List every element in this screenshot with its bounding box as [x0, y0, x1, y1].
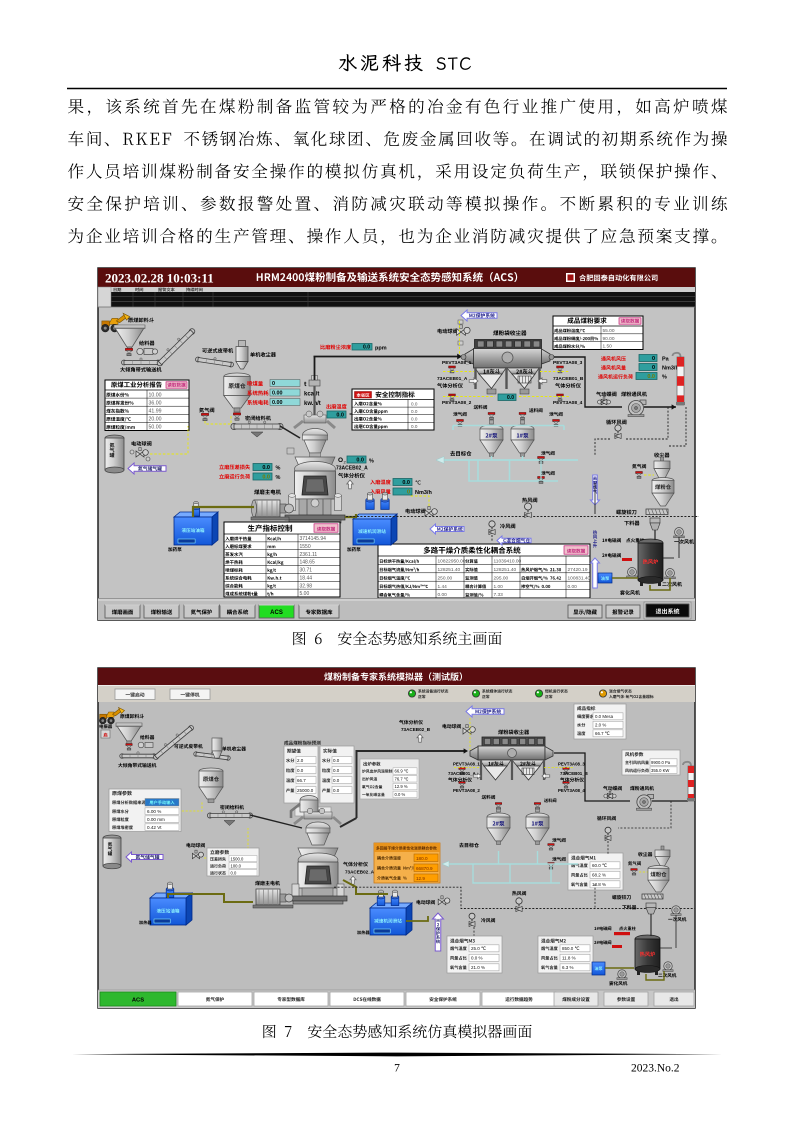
svg-text:PEVT3A08_1: PEVT3A08_1 — [442, 360, 472, 366]
svg-text:0.0: 0.0 — [411, 409, 418, 414]
svg-text:25.0 ℃: 25.0 ℃ — [471, 946, 487, 951]
svg-text:10.00: 10.00 — [149, 392, 162, 398]
svg-text:12.9 %: 12.9 % — [395, 784, 408, 789]
svg-text:9900.0 Pa: 9900.0 Pa — [651, 760, 671, 765]
svg-text:66.7: 66.7 — [297, 778, 306, 783]
svg-text:%: % — [369, 459, 374, 465]
svg-text:295.00: 295.00 — [494, 575, 509, 581]
svg-text:1.00: 1.00 — [494, 584, 504, 590]
svg-text:0.00: 0.00 — [272, 400, 283, 406]
svg-text:90.00: 90.00 — [603, 336, 615, 342]
svg-text:PEVT3A08_2: PEVT3A08_2 — [453, 788, 480, 793]
svg-text:kw.h/t: kw.h/t — [304, 401, 321, 407]
svg-text:55.00: 55.00 — [603, 328, 615, 334]
svg-text:PEVT3A08_4: PEVT3A08_4 — [553, 400, 583, 406]
svg-text:0: 0 — [652, 365, 655, 371]
svg-text:0.0: 0.0 — [297, 768, 304, 773]
svg-text:180.0: 180.0 — [416, 856, 428, 861]
svg-text:20.00: 20.00 — [149, 417, 162, 423]
svg-text:kcal/t: kcal/t — [304, 392, 319, 398]
svg-text:ACS: ACS — [270, 610, 283, 616]
svg-text:2023.No.2: 2023.No.2 — [631, 1063, 680, 1075]
svg-text:1.44: 1.44 — [438, 584, 448, 590]
svg-text:13.8 %: 13.8 % — [592, 882, 606, 887]
svg-text:0.0: 0.0 — [507, 395, 514, 401]
svg-text:36.00: 36.00 — [149, 400, 162, 406]
svg-text:30.71: 30.71 — [300, 568, 313, 574]
svg-text:32.98: 32.98 — [300, 583, 313, 589]
svg-text:0.0: 0.0 — [363, 344, 370, 350]
svg-text:21.0 %: 21.0 % — [471, 965, 485, 970]
svg-text:0: 0 — [272, 381, 275, 387]
svg-text:0.0: 0.0 — [333, 758, 340, 763]
svg-text:PEVT3A08_2: PEVT3A08_2 — [442, 400, 472, 406]
svg-text:℃: ℃ — [415, 481, 422, 487]
svg-text:6.3 %: 6.3 % — [562, 965, 574, 970]
svg-text:0.0: 0.0 — [262, 474, 270, 480]
svg-text:0.0 %: 0.0 % — [471, 956, 483, 961]
svg-text:41.99: 41.99 — [149, 409, 162, 415]
svg-text:0.0 Mesa: 0.0 Mesa — [595, 714, 614, 719]
svg-text:%: % — [276, 466, 281, 472]
svg-text:73ACEB01_B: 73ACEB01_B — [553, 376, 584, 382]
svg-text:2023.02.28 10:03:11: 2023.02.28 10:03:11 — [105, 271, 214, 286]
svg-text:7.33: 7.33 — [494, 592, 504, 598]
svg-text:10822950.00: 10822950.00 — [438, 559, 466, 565]
svg-text:0: 0 — [652, 356, 655, 362]
svg-text:73ACEB02_A: 73ACEB02_A — [345, 870, 375, 875]
svg-text:%: % — [276, 475, 281, 481]
svg-text:0.0: 0.0 — [356, 457, 364, 463]
svg-text:66.9 ℃: 66.9 ℃ — [395, 769, 409, 774]
svg-text:11039410.00: 11039410.00 — [494, 559, 522, 565]
svg-text:PEVT3A08_3: PEVT3A08_3 — [553, 360, 583, 366]
svg-text:7: 7 — [394, 1063, 400, 1075]
svg-text:68.2 %: 68.2 % — [592, 873, 606, 878]
svg-text:60.0 ℃: 60.0 ℃ — [592, 863, 608, 868]
svg-text:0.0: 0.0 — [402, 480, 410, 486]
svg-text:0.00: 0.00 — [438, 592, 448, 598]
svg-text:PEVT3A08_4: PEVT3A08_4 — [558, 788, 585, 793]
svg-text:0.0: 0.0 — [647, 374, 655, 380]
svg-text:1500.0: 1500.0 — [231, 857, 244, 862]
svg-text:2361.11: 2361.11 — [300, 552, 318, 558]
svg-text:Pa: Pa — [662, 357, 670, 363]
svg-text:PEVT3A08_3: PEVT3A08_3 — [558, 762, 585, 767]
svg-text:0: 0 — [407, 489, 410, 495]
svg-text:148.65: 148.65 — [300, 560, 316, 566]
svg-text:73ACEB02_A: 73ACEB02_A — [336, 466, 368, 472]
svg-text:73ACEB01_B: 73ACEB01_B — [560, 771, 588, 776]
svg-text:O: O — [338, 457, 343, 464]
svg-text:50.00: 50.00 — [149, 425, 162, 431]
svg-text:PEVT3A08_1: PEVT3A08_1 — [453, 762, 480, 767]
svg-text:0.0: 0.0 — [262, 465, 270, 471]
svg-text:850.0 ℃: 850.0 ℃ — [562, 946, 581, 951]
svg-text:0.00: 0.00 — [272, 390, 283, 396]
svg-text:1550: 1550 — [300, 544, 311, 550]
svg-text:Nm3/h: Nm3/h — [415, 490, 432, 496]
svg-text:2.0 %: 2.0 % — [595, 723, 606, 728]
svg-text:ppm: ppm — [375, 346, 387, 352]
svg-text:2.0: 2.0 — [297, 758, 304, 763]
svg-text:3714145.94: 3714145.94 — [300, 536, 327, 542]
svg-text:100831.40: 100831.40 — [568, 575, 591, 581]
svg-text:%: % — [662, 375, 667, 381]
svg-text:25000.0: 25000.0 — [297, 788, 314, 793]
svg-text:0.0: 0.0 — [333, 788, 340, 793]
svg-text:12.9: 12.9 — [416, 876, 425, 881]
svg-text:128251.40: 128251.40 — [438, 567, 461, 573]
svg-text:0.00 mm: 0.00 mm — [147, 817, 165, 822]
svg-text:73ACEB02_B: 73ACEB02_B — [401, 727, 431, 732]
svg-text:11.8 %: 11.8 % — [562, 956, 576, 961]
svg-text:0.00: 0.00 — [568, 584, 578, 590]
svg-text:66870.9: 66870.9 — [416, 866, 433, 871]
svg-text:0.0: 0.0 — [411, 424, 418, 429]
svg-text:73ACEB01_A: 73ACEB01_A — [437, 376, 468, 382]
svg-text:ACS: ACS — [132, 998, 144, 1004]
svg-text:27420.19: 27420.19 — [568, 567, 588, 573]
svg-text:76.7 ℃: 76.7 ℃ — [395, 776, 409, 781]
svg-text:100.0: 100.0 — [231, 864, 242, 869]
svg-text:0.42 Vt: 0.42 Vt — [147, 825, 162, 830]
svg-text:0.0: 0.0 — [333, 768, 340, 773]
svg-text:1.50: 1.50 — [603, 344, 613, 350]
svg-text:0.0: 0.0 — [333, 778, 340, 783]
svg-text:0.0: 0.0 — [336, 412, 344, 418]
svg-text:18.44: 18.44 — [300, 575, 313, 581]
svg-text:73ACEB01_A: 73ACEB01_A — [448, 771, 477, 776]
svg-text:128251.40: 128251.40 — [494, 567, 517, 573]
svg-text:5.00: 5.00 — [300, 591, 310, 597]
svg-text:66.7 ℃: 66.7 ℃ — [595, 731, 610, 736]
svg-text:355.0 KW: 355.0 KW — [651, 768, 669, 773]
svg-text:250.00: 250.00 — [438, 575, 453, 581]
svg-text:0.0 %: 0.0 % — [395, 792, 406, 797]
svg-text:0.0: 0.0 — [411, 401, 418, 406]
svg-text:0.0: 0.0 — [411, 417, 418, 422]
svg-text:6.00 %: 6.00 % — [147, 809, 161, 814]
svg-text:0.0: 0.0 — [231, 871, 237, 876]
